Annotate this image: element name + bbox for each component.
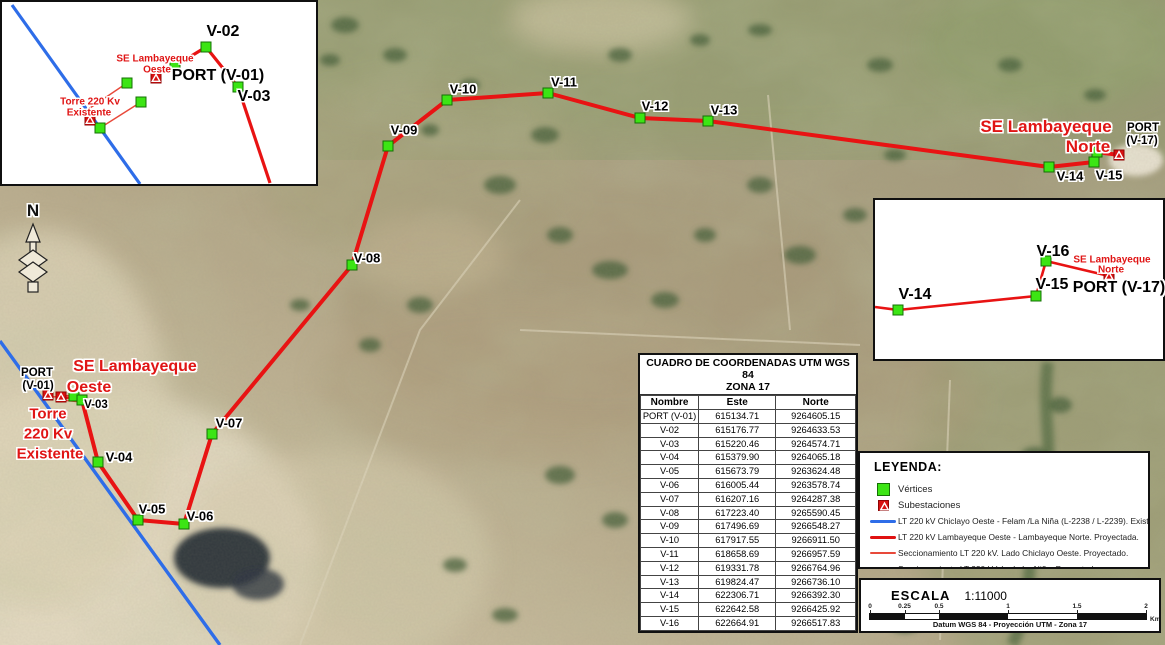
legend-item-label: Vértices — [898, 484, 932, 495]
este-cell: 622664.91 — [699, 616, 776, 630]
scale-bar-segment — [1008, 614, 1077, 619]
coordinates-table: NombreEsteNorte PORT (V-01)615134.719264… — [640, 395, 856, 633]
coordinates-title-line2: ZONA 17 — [640, 381, 856, 393]
table-row: V-10617917.559266911.50 — [641, 534, 856, 548]
scale-bar: 00.250.511.52Km — [869, 613, 1147, 620]
norte-cell: 9264605.15 — [776, 410, 856, 424]
scale-tick-label: 0.5 — [934, 603, 943, 610]
scale-tick-mark — [870, 610, 871, 614]
scale-bar-segment — [939, 614, 1008, 619]
norte-cell: 9266957.59 — [776, 547, 856, 561]
map-sheet: V-03V-04V-05V-06V-07V-08V-09V-10V-11V-12… — [0, 0, 1165, 645]
scale-tick-label: 2 — [1144, 603, 1148, 610]
coordinates-title-line1: CUADRO DE COORDENADAS UTM WGS 84 — [640, 357, 856, 381]
vertex-name-cell: V-11 — [641, 547, 699, 561]
norte-cell: 9266548.27 — [776, 520, 856, 534]
vertex-name-cell: V-03 — [641, 437, 699, 451]
norte-cell: 9263624.48 — [776, 465, 856, 479]
norte-cell: 9266392.30 — [776, 589, 856, 603]
vertex-name-cell: PORT (V-17) — [641, 630, 699, 633]
este-cell: 615673.79 — [699, 465, 776, 479]
table-row: V-07616207.169264287.38 — [641, 492, 856, 506]
legend-item: Vértices — [868, 481, 1144, 497]
line-red-thin-glyph — [870, 568, 896, 569]
norte-cell: 9264574.71 — [776, 437, 856, 451]
line-red-thick-icon — [868, 536, 898, 539]
este-cell: 622642.58 — [699, 603, 776, 617]
este-cell: 615220.46 — [699, 437, 776, 451]
este-cell: 616207.16 — [699, 492, 776, 506]
vertex-name-cell: V-12 — [641, 561, 699, 575]
este-cell: 617223.40 — [699, 506, 776, 520]
scale-datum: Datum WGS 84 - Proyección UTM - Zona 17 — [861, 620, 1159, 629]
vertex-name-cell: V-06 — [641, 478, 699, 492]
vertex-marker — [893, 305, 904, 316]
table-row: PORT (V-01)615134.719264605.15 — [641, 410, 856, 424]
este-cell: 615134.71 — [699, 410, 776, 424]
scale-tick-label: 0.25 — [898, 603, 911, 610]
vertex-name-cell: V-04 — [641, 451, 699, 465]
vertex-name-cell: V-08 — [641, 506, 699, 520]
scale-tick-mark — [1146, 610, 1147, 614]
este-cell: 622306.71 — [699, 589, 776, 603]
map-label: Norte — [1098, 265, 1124, 276]
inset-map-nw: V-02PORT (V-01)V-03SE LambayequeOesteTor… — [0, 0, 318, 186]
legend-item-label: LT 220 kV Lambayeque Oeste - Lambayeque … — [898, 532, 1139, 542]
scale-tick-mark — [1077, 610, 1078, 614]
coordinates-title: CUADRO DE COORDENADAS UTM WGS 84 ZONA 17 — [640, 355, 856, 395]
table-row: V-12619331.789266764.96 — [641, 561, 856, 575]
scale-bar-segment — [1077, 614, 1146, 619]
scale-bar-segment — [870, 614, 905, 619]
vertex-name-cell: V-14 — [641, 589, 699, 603]
vertex-name-cell: V-02 — [641, 423, 699, 437]
norte-cell: 9266911.50 — [776, 534, 856, 548]
table-row: V-02615176.779264633.53 — [641, 423, 856, 437]
legend-item-label: Seccionamiento LT 220 kV. Lado La Niña. … — [898, 564, 1100, 569]
table-row: PORT (V-17)622818.189266479.61 — [641, 630, 856, 633]
line-blue-thick-icon — [868, 520, 898, 523]
scale-ratio: 1:11000 — [964, 589, 1007, 603]
legend-items: VérticesSubestacionesLT 220 kV Chiclayo … — [868, 481, 1144, 569]
vertex-name-cell: V-05 — [641, 465, 699, 479]
substation-square-glyph — [878, 500, 889, 511]
table-row: V-11618658.699266957.59 — [641, 547, 856, 561]
line-red-thin-glyph — [870, 552, 896, 554]
legend-item-label: LT 220 kV Chiclayo Oeste - Felam /La Niñ… — [898, 516, 1150, 526]
line-blue-thick-glyph — [870, 520, 896, 523]
line-red-thick-glyph — [870, 536, 896, 539]
table-row: V-03615220.469264574.71 — [641, 437, 856, 451]
line-red-thin-icon — [868, 552, 898, 554]
inset-e-markers: V-14V-15V-16SE LambayequeNortePORT (V-17… — [875, 200, 1163, 359]
line-red-thin-icon — [868, 568, 898, 569]
scale-tick-mark — [939, 610, 940, 614]
vertex-name-cell: V-15 — [641, 603, 699, 617]
north-arrow-glyph — [10, 222, 56, 296]
table-row: V-15622642.589266425.92 — [641, 603, 856, 617]
inset-map-east: V-14V-15V-16SE LambayequeNortePORT (V-17… — [873, 198, 1165, 361]
map-label: PORT (V-17) — [1073, 279, 1165, 297]
map-label: V-14 — [899, 286, 932, 304]
norte-cell: 9264633.53 — [776, 423, 856, 437]
table-row: V-06616005.449263578.74 — [641, 478, 856, 492]
legend-item: Subestaciones — [868, 497, 1144, 513]
norte-cell: 9264065.18 — [776, 451, 856, 465]
map-label: Existente — [67, 108, 111, 119]
legend-item: LT 220 kV Chiclayo Oeste - Felam /La Niñ… — [868, 513, 1144, 529]
coordinates-panel: CUADRO DE COORDENADAS UTM WGS 84 ZONA 17… — [638, 353, 858, 633]
este-cell: 619824.47 — [699, 575, 776, 589]
table-row: V-08617223.409265590.45 — [641, 506, 856, 520]
vertex-name-cell: V-13 — [641, 575, 699, 589]
legend-item-label: Seccionamiento LT 220 kV. Lado Chiclayo … — [898, 548, 1128, 558]
vertex-marker — [136, 97, 147, 108]
vertex-marker — [122, 78, 133, 89]
column-header: Nombre — [641, 396, 699, 410]
table-row: V-04615379.909264065.18 — [641, 451, 856, 465]
scale-label: ESCALA — [891, 588, 950, 603]
este-cell: 622818.18 — [699, 630, 776, 633]
vertex-name-cell: V-10 — [641, 534, 699, 548]
column-header: Norte — [776, 396, 856, 410]
norte-cell: 9266425.92 — [776, 603, 856, 617]
legend-item: Seccionamiento LT 220 kV. Lado La Niña. … — [868, 561, 1144, 569]
scale-tick-mark — [905, 610, 906, 614]
map-label: SE Lambayeque — [116, 54, 193, 65]
vertex-square-glyph — [877, 483, 890, 496]
map-label: V-16 — [1037, 243, 1070, 261]
este-cell: 617917.55 — [699, 534, 776, 548]
scale-tick-label: 0 — [868, 603, 872, 610]
vertex-name-cell: V-16 — [641, 616, 699, 630]
north-label: N — [27, 201, 39, 221]
norte-cell: 9266764.96 — [776, 561, 856, 575]
vertex-marker — [95, 123, 106, 134]
map-label: V-02 — [207, 23, 240, 41]
este-cell: 615379.90 — [699, 451, 776, 465]
este-cell: 618658.69 — [699, 547, 776, 561]
vertex-name-cell: V-07 — [641, 492, 699, 506]
este-cell: 616005.44 — [699, 478, 776, 492]
scale-bar-segment — [905, 614, 940, 619]
vertex-name-cell: PORT (V-01) — [641, 410, 699, 424]
table-row: V-09617496.699266548.27 — [641, 520, 856, 534]
scale-tick-mark — [1008, 610, 1009, 614]
map-label: V-03 — [238, 88, 271, 106]
vertex-name-cell: V-09 — [641, 520, 699, 534]
substation-square-icon — [868, 500, 898, 511]
map-label: PORT (V-01) — [172, 67, 264, 85]
column-header: Este — [699, 396, 776, 410]
legend-item: LT 220 kV Lambayeque Oeste - Lambayeque … — [868, 529, 1144, 545]
map-label: Torre 220 Kv — [60, 97, 120, 108]
existing-line-blue — [0, 341, 220, 645]
norte-cell: 9265590.45 — [776, 506, 856, 520]
legend-item-label: Subestaciones — [898, 500, 960, 511]
este-cell: 619331.78 — [699, 561, 776, 575]
map-label: V-15 — [1036, 276, 1069, 294]
coordinates-table-body: PORT (V-01)615134.719264605.15V-02615176… — [641, 410, 856, 634]
map-label: Oeste — [143, 65, 171, 76]
norte-cell: 9266479.61 — [776, 630, 856, 633]
este-cell: 617496.69 — [699, 520, 776, 534]
norte-cell: 9263578.74 — [776, 478, 856, 492]
scale-tick-label: 1.5 — [1072, 603, 1081, 610]
norte-cell: 9266517.83 — [776, 616, 856, 630]
vertex-square-icon — [868, 483, 898, 496]
legend-title: LEYENDA: — [874, 460, 1144, 474]
inset-nw-markers: V-02PORT (V-01)V-03SE LambayequeOesteTor… — [2, 2, 316, 184]
legend-panel: LEYENDA: VérticesSubestacionesLT 220 kV … — [858, 451, 1150, 569]
table-row: V-13619824.479266736.10 — [641, 575, 856, 589]
table-row: V-16622664.919266517.83 — [641, 616, 856, 630]
este-cell: 615176.77 — [699, 423, 776, 437]
scale-panel: ESCALA1:11000 00.250.511.52Km Datum WGS … — [859, 578, 1161, 633]
table-row: V-05615673.799263624.48 — [641, 465, 856, 479]
coordinates-table-header-row: NombreEsteNorte — [641, 396, 856, 410]
north-arrow: N — [10, 200, 56, 296]
norte-cell: 9264287.38 — [776, 492, 856, 506]
norte-cell: 9266736.10 — [776, 575, 856, 589]
legend-item: Seccionamiento LT 220 kV. Lado Chiclayo … — [868, 545, 1144, 561]
vertex-marker — [201, 42, 212, 53]
scale-tick-label: 1 — [1006, 603, 1010, 610]
table-row: V-14622306.719266392.30 — [641, 589, 856, 603]
